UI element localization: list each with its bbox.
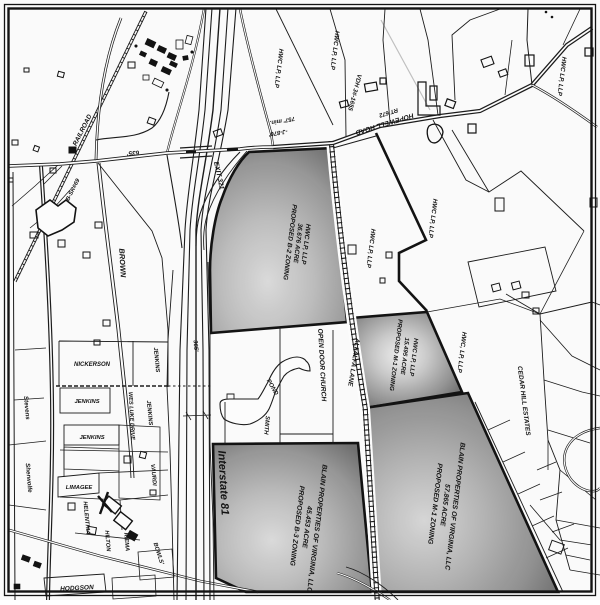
svg-text:365': 365' [192,340,199,352]
svg-text:LIMAGEE: LIMAGEE [66,485,94,491]
svg-text:JENKINS: JENKINS [74,399,99,405]
svg-text:BROWN: BROWN [117,248,128,278]
svg-text:JENKINS: JENKINS [79,435,104,441]
svg-text:NICKERSON: NICKERSON [74,362,111,368]
svg-text:635': 635' [126,149,139,157]
